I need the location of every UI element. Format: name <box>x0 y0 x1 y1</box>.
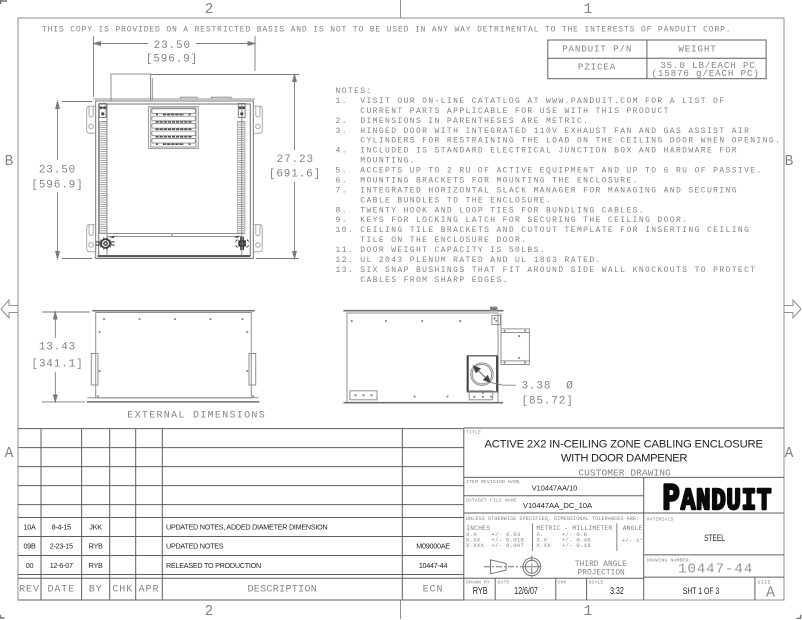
svg-text:[341.1]: [341.1] <box>31 359 83 371</box>
svg-text:13. SIX SNAP BUSHINGS THAT FIT: 13. SIX SNAP BUSHINGS THAT FIT AROUND SI… <box>336 266 757 275</box>
svg-text:NOTES:: NOTES: <box>336 87 373 96</box>
svg-text:DATE: DATE <box>47 585 75 596</box>
svg-text:3.38 Ø: 3.38 Ø <box>522 381 574 393</box>
svg-text:1. VISIT OUR ON-LINE CATATLOG: 1. VISIT OUR ON-LINE CATATLOG AT WWW.PAN… <box>336 97 726 106</box>
svg-text:2. DIMENSIONS IN PARENTHESES: 2. DIMENSIONS IN PARENTHESES ARE METRIC. <box>336 117 590 126</box>
svg-text:[596.9]: [596.9] <box>146 53 198 65</box>
svg-text:JKK: JKK <box>89 523 102 532</box>
svg-text:V10447AA_DC_10A: V10447AA_DC_10A <box>523 501 593 510</box>
svg-text:ANDUIT: ANDUIT <box>681 484 772 519</box>
svg-text:WITH DOOR DAMPENER: WITH DOOR DAMPENER <box>561 452 688 464</box>
svg-text:(15876 g/EACH PC): (15876 g/EACH PC) <box>652 68 760 79</box>
svg-text:SHT 1 OF 3: SHT 1 OF 3 <box>683 586 720 596</box>
svg-text:3:32: 3:32 <box>610 585 624 597</box>
svg-text:UNLESS OTHERWISE SPECIFIED, DI: UNLESS OTHERWISE SPECIFIED, DIMENSIONAL … <box>466 516 639 522</box>
svg-text:B: B <box>5 154 14 170</box>
svg-text:WEIGHT: WEIGHT <box>678 44 716 55</box>
svg-text:CUSTOMER DRAWING: CUSTOMER DRAWING <box>578 468 671 479</box>
svg-text:9. KEYS FOR LOCKING LATCH FOR: 9. KEYS FOR LOCKING LATCH FOR SECURING T… <box>336 216 689 225</box>
svg-text:7. INTEGRATED HORIZONTAL SLAC: 7. INTEGRATED HORIZONTAL SLACK MANAGER F… <box>336 186 738 195</box>
svg-text:APR: APR <box>139 585 160 596</box>
svg-text:CABLES FROM SHARP EDGES.: CABLES FROM SHARP EDGES. <box>336 276 509 285</box>
svg-text:ACTIVE 2X2 IN-CEILING ZONE CAB: ACTIVE 2X2 IN-CEILING ZONE CABLING ENCLO… <box>484 439 762 451</box>
svg-text:10447-44: 10447-44 <box>678 561 753 577</box>
svg-text:2: 2 <box>205 2 214 18</box>
svg-text:P: P <box>663 478 680 520</box>
svg-text:DATASET FILE NAME: DATASET FILE NAME <box>466 498 517 504</box>
svg-text:1: 1 <box>584 2 593 18</box>
svg-text:ITEM REVISION NAME: ITEM REVISION NAME <box>466 479 520 485</box>
svg-text:11. DOOR WEIGHT CAPACITY IS 50: 11. DOOR WEIGHT CAPACITY IS 50LBS. <box>336 246 547 255</box>
svg-text:12/6/07: 12/6/07 <box>514 585 538 597</box>
svg-text:UPDATED NOTES: UPDATED NOTES <box>166 542 224 551</box>
svg-text:B: B <box>785 154 794 170</box>
svg-text:[691.6]: [691.6] <box>269 169 321 181</box>
svg-text:STEEL: STEEL <box>704 533 725 543</box>
svg-text:M09000AE: M09000AE <box>416 542 450 551</box>
svg-text:THIS COPY IS PROVIDED ON A RES: THIS COPY IS PROVIDED ON A RESTRICTED BA… <box>42 26 731 35</box>
svg-text:2-23-15: 2-23-15 <box>50 542 73 551</box>
svg-text:23.50: 23.50 <box>154 40 191 52</box>
svg-text:CURRENT PARTS APPLICABLE FOR U: CURRENT PARTS APPLICABLE FOR USE WITH TH… <box>336 107 670 116</box>
svg-text:ECN: ECN <box>423 585 444 596</box>
svg-text:V10447AA/10: V10447AA/10 <box>532 483 578 492</box>
svg-text:REV: REV <box>19 585 40 596</box>
svg-text:DESCRIPTION: DESCRIPTION <box>247 585 317 596</box>
svg-text:3. HINGED DOOR WITH INTEGRATE: 3. HINGED DOOR WITH INTEGRATED 110V EXHA… <box>336 127 751 136</box>
svg-text:RELEASED TO PRODUCTION: RELEASED TO PRODUCTION <box>166 561 261 570</box>
svg-text:X.XXX +/- 0.007: X.XXX +/- 0.007 <box>466 542 524 549</box>
svg-text:TILE ON THE ENCLOSURE DOOR.: TILE ON THE ENCLOSURE DOOR. <box>336 236 528 245</box>
svg-text:TITLE: TITLE <box>466 430 481 436</box>
svg-text:X.XX +/- 0.18: X.XX +/- 0.18 <box>536 542 591 549</box>
svg-text:2: 2 <box>205 604 214 620</box>
svg-text:CYLINDERS FOR RESTRAINING THE: CYLINDERS FOR RESTRAINING THE LOAD ON TH… <box>336 137 782 146</box>
svg-text:SCALE: SCALE <box>589 580 604 586</box>
svg-text:BY: BY <box>89 585 103 596</box>
svg-text:RYB: RYB <box>89 542 103 551</box>
svg-text:4. INCLUDED IS STANDARD ELECT: 4. INCLUDED IS STANDARD ELECTRICAL JUNCT… <box>336 147 738 156</box>
svg-text:13.43: 13.43 <box>39 342 76 354</box>
svg-text:RYB: RYB <box>89 561 103 570</box>
svg-text:1: 1 <box>584 604 593 620</box>
svg-text:12-6-07: 12-6-07 <box>50 561 73 570</box>
svg-text:PANDUIT P/N: PANDUIT P/N <box>562 44 632 55</box>
svg-text:6. MOUNTING BRACKETS FOR MOUN: 6. MOUNTING BRACKETS FOR MOUNTING THE EN… <box>336 176 639 185</box>
svg-text:10A: 10A <box>23 523 35 532</box>
svg-text:8-4-15: 8-4-15 <box>52 523 72 532</box>
svg-text:CHK: CHK <box>558 580 567 586</box>
svg-text:5. ACCEPTS UP TO 2 RU OF ACTI: 5. ACCEPTS UP TO 2 RU OF ACTIVE EQUIPMEN… <box>336 167 763 176</box>
svg-text:THIRD ANGLE: THIRD ANGLE <box>575 561 627 569</box>
svg-text:A: A <box>785 446 794 462</box>
svg-text:PROJECTION: PROJECTION <box>578 569 626 577</box>
svg-text:RYB: RYB <box>473 585 488 596</box>
svg-text:27.23: 27.23 <box>277 154 314 166</box>
svg-text:00: 00 <box>26 561 34 570</box>
svg-text:23.50: 23.50 <box>39 165 76 177</box>
svg-text:09B: 09B <box>23 542 35 551</box>
svg-text:A: A <box>5 446 14 462</box>
svg-text:DATE: DATE <box>498 580 510 586</box>
svg-text:CABLE BUNDLES TO THE ENCLOSURE: CABLE BUNDLES TO THE ENCLOSURE. <box>336 196 553 205</box>
svg-text:+/- 1°: +/- 1° <box>622 537 644 544</box>
svg-text:EXTERNAL DIMENSIONS: EXTERNAL DIMENSIONS <box>127 411 266 422</box>
svg-text:12. UL 2043 PLENUM RATED AND U: 12. UL 2043 PLENUM RATED AND UL 1863 RAT… <box>336 256 602 265</box>
svg-text:PZICEA: PZICEA <box>578 61 616 72</box>
svg-text:10. CEILING TILE BRACKETS AND: 10. CEILING TILE BRACKETS AND CUTOUT TEM… <box>336 226 751 235</box>
svg-text:[596.9]: [596.9] <box>31 180 83 192</box>
svg-text:CHK: CHK <box>112 585 133 596</box>
svg-text:UPDATED NOTES, ADDED DIAMETER: UPDATED NOTES, ADDED DIAMETER DIMENSION <box>166 523 327 532</box>
svg-text:10447-44: 10447-44 <box>419 561 448 570</box>
svg-text:A: A <box>766 584 775 601</box>
svg-text:MOUNTING.: MOUNTING. <box>336 157 416 166</box>
svg-text:8. TWENTY HOOK AND LOOP TIES: 8. TWENTY HOOK AND LOOP TIES FOR BUNDLIN… <box>336 206 646 215</box>
svg-text:ANGLE: ANGLE <box>623 525 643 532</box>
svg-text:[85.72]: [85.72] <box>522 395 574 407</box>
